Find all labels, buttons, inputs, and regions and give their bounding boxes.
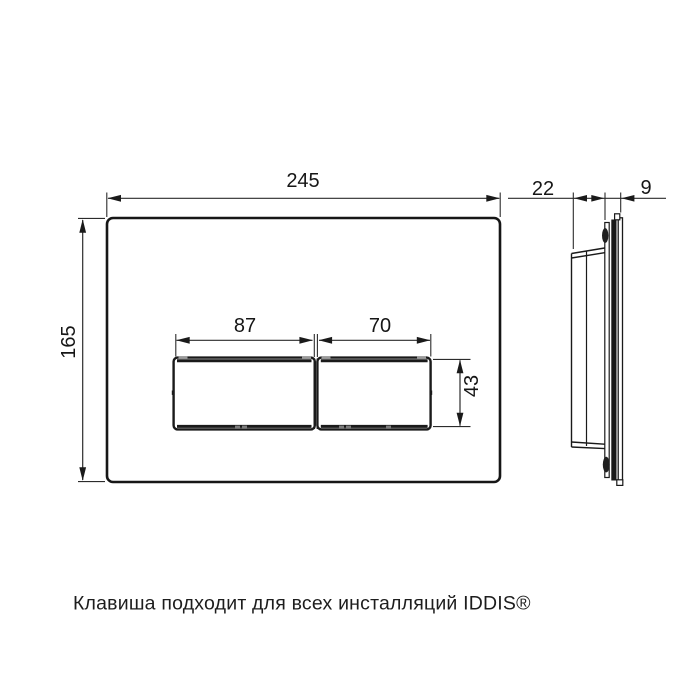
dim-label-depth: 22 <box>532 179 554 199</box>
compatibility-caption: Клавиша подходит для всех инсталляций ID… <box>73 593 531 616</box>
dimension-depth-and-thickness <box>508 193 666 250</box>
side-plate <box>602 214 623 486</box>
dim-label-button-height: 43 <box>462 375 482 397</box>
dim-label-plate-width: 245 <box>286 171 319 191</box>
clip-detail-bottom <box>603 457 610 473</box>
side-view <box>508 193 666 486</box>
flush-buttons <box>172 356 432 429</box>
dimension-plate-height <box>78 218 105 481</box>
left-button <box>174 358 315 430</box>
right-button <box>317 358 430 430</box>
dim-label-plate-thickness: 9 <box>640 178 651 198</box>
side-housing <box>572 248 605 449</box>
plate-outline <box>107 218 500 482</box>
technical-drawing-flush-plate: 245 165 87 70 43 22 9 Клавиша подходит д… <box>0 0 700 700</box>
clip-detail-top <box>602 228 608 243</box>
dimension-plate-width <box>107 193 500 218</box>
dim-label-left-button-width: 87 <box>234 316 256 336</box>
front-view <box>78 193 500 483</box>
dim-label-plate-height: 165 <box>59 325 79 358</box>
dim-label-right-button-width: 70 <box>369 316 391 336</box>
